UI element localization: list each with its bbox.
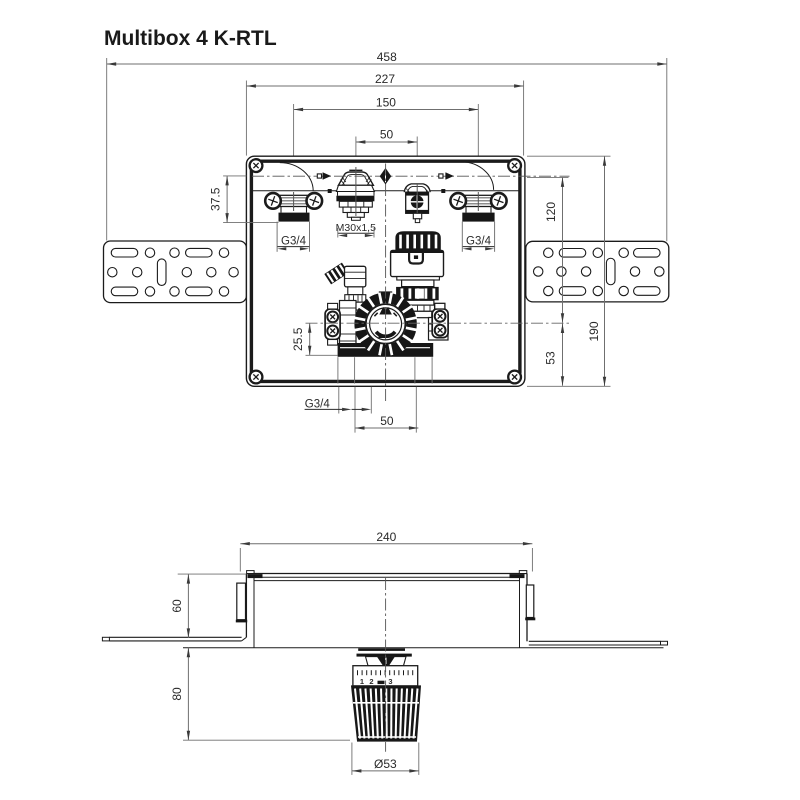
svg-text:458: 458 [377, 50, 397, 64]
svg-text:60: 60 [170, 599, 184, 613]
svg-text:M30x1,5: M30x1,5 [336, 222, 376, 234]
svg-text:50: 50 [380, 414, 394, 428]
svg-text:37.5: 37.5 [209, 187, 223, 211]
svg-text:3: 3 [388, 677, 392, 686]
svg-text:120: 120 [544, 202, 558, 222]
svg-text:53: 53 [544, 351, 558, 365]
svg-text:Ø53: Ø53 [374, 757, 397, 771]
svg-text:240: 240 [376, 530, 396, 544]
svg-text:150: 150 [376, 96, 396, 110]
svg-text:G3/4: G3/4 [281, 236, 307, 248]
svg-text:2: 2 [369, 677, 373, 686]
svg-text:50: 50 [380, 128, 394, 142]
svg-text:25.5: 25.5 [291, 327, 305, 351]
svg-text:80: 80 [170, 687, 184, 701]
svg-text:190: 190 [587, 321, 601, 341]
svg-text:227: 227 [375, 72, 395, 86]
svg-text:G3/4: G3/4 [305, 398, 331, 410]
svg-text:Multibox 4 K-RTL: Multibox 4 K-RTL [104, 27, 277, 50]
svg-text:G3/4: G3/4 [466, 236, 492, 248]
svg-text:1: 1 [360, 677, 364, 686]
